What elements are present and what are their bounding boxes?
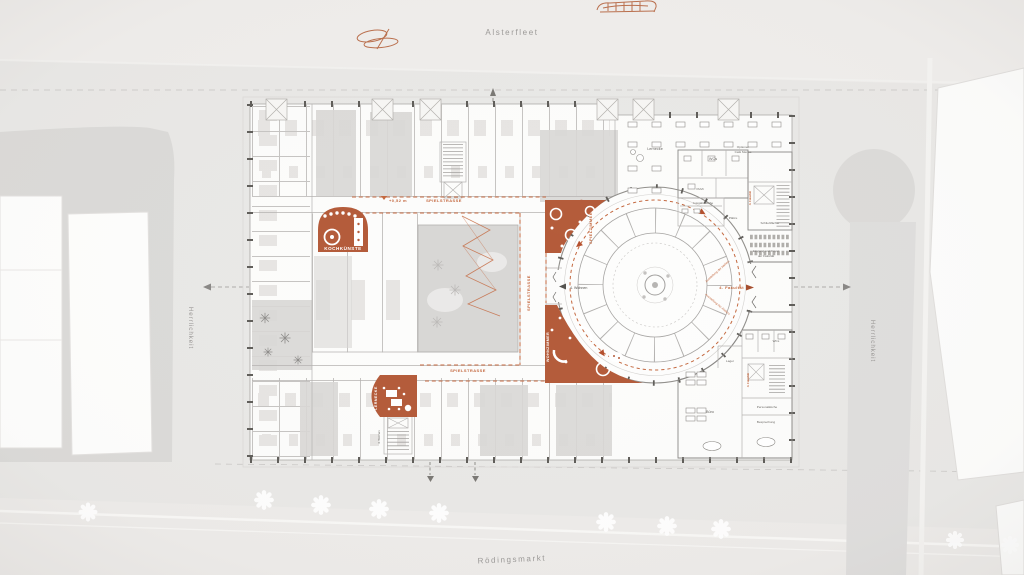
room-label-ausgabekueche: Ausgabeküche xyxy=(693,201,714,205)
neighbor-building-a xyxy=(0,196,62,448)
cafe-label-line2: Café Mensa xyxy=(735,150,752,154)
tree-icon xyxy=(431,505,446,520)
stair-label-ne: 4. Fakultät xyxy=(748,191,752,205)
west-block xyxy=(0,127,174,462)
tree-icon xyxy=(256,492,271,507)
site-plan-drawing: Alsterfleet Rödingsmarkt Herrlichkeit He… xyxy=(0,0,1024,575)
tree-icon xyxy=(294,356,302,364)
tree-icon xyxy=(260,313,270,323)
room-label-wcs-north: WCs xyxy=(709,157,717,161)
street-label-north: Alsterfleet xyxy=(485,28,538,37)
main-building xyxy=(243,97,799,467)
street-label-west: Herrlichkeit xyxy=(187,307,194,349)
room-label-pumi: PuMi xyxy=(696,187,703,191)
tree-icon xyxy=(713,521,728,536)
lounge-chair-icon xyxy=(631,150,636,155)
room-label-lager: Lager xyxy=(726,359,734,363)
tree-icon xyxy=(264,348,272,356)
spielstrasse-label-top: SPIELSTRASSE xyxy=(426,198,462,203)
room-label-plaetze: Plätze xyxy=(729,216,738,220)
tree-icon xyxy=(313,497,328,512)
lounge-icon xyxy=(609,352,623,362)
tree-icon xyxy=(659,518,674,533)
room-label-kochkuenste: KOCHKÜNSTE xyxy=(324,245,361,251)
tree-icon xyxy=(432,317,443,328)
foyer-label-line2: der Fakultät xyxy=(758,254,774,258)
room-label-lernecke: LERNECKE xyxy=(374,386,378,410)
room-label-lernecke-cafe: Lernecke xyxy=(647,147,663,151)
central-courtyard xyxy=(418,225,518,352)
spielstrasse-label-bottom: SPIELSTRASSE xyxy=(450,368,486,373)
foyer-label-line1: Eingang und Foyer xyxy=(753,249,779,253)
elevation-mark-label: +0,52 m xyxy=(389,198,407,203)
tree-icon xyxy=(81,505,96,520)
tree-icon xyxy=(371,501,386,516)
neighbor-building-b xyxy=(68,212,152,455)
room-label-besprechung: Besprechung xyxy=(757,420,776,424)
meeting-table-icon xyxy=(757,438,775,447)
room-label-wcs-south: WCs xyxy=(773,339,780,343)
street-label-east: Herrlichkeit xyxy=(869,320,876,362)
meeting-table-icon xyxy=(703,442,721,451)
lounge-chair-icon xyxy=(637,155,644,162)
room-label-buero: Büro xyxy=(706,410,714,414)
stair-label-se: 4. Fakultät xyxy=(746,373,750,387)
room-label-personalkueche: Personalküche xyxy=(757,405,778,409)
room-label-schliessfaecher: Schließfächer xyxy=(761,221,780,225)
axis-label-west: 4. Wohnen xyxy=(570,286,587,290)
tree-icon xyxy=(1003,538,1017,552)
spielstrasse-label-mid: SPIELSTRASSE xyxy=(526,275,531,311)
floor-plan-canvas: Alsterfleet Rödingsmarkt Herrlichkeit He… xyxy=(0,0,1024,575)
room-label-spielzimmer: SPIELZIMMER xyxy=(588,212,593,244)
room-lernecke xyxy=(372,375,418,417)
tree-icon xyxy=(598,514,613,529)
tree-icon xyxy=(450,285,461,296)
table-icon xyxy=(391,399,402,406)
cafe-label-line1: Optionen xyxy=(737,145,750,149)
axis-label-east: 4. Fakultät xyxy=(719,285,744,290)
room-label-wohnzimmer: WOHNZIMMER xyxy=(546,332,550,362)
tree-icon xyxy=(280,333,291,344)
tree-icon xyxy=(433,260,444,271)
tree-icon xyxy=(948,533,962,547)
stair-label-sw: 4. Wohnen xyxy=(377,430,381,444)
table-icon xyxy=(386,390,397,397)
